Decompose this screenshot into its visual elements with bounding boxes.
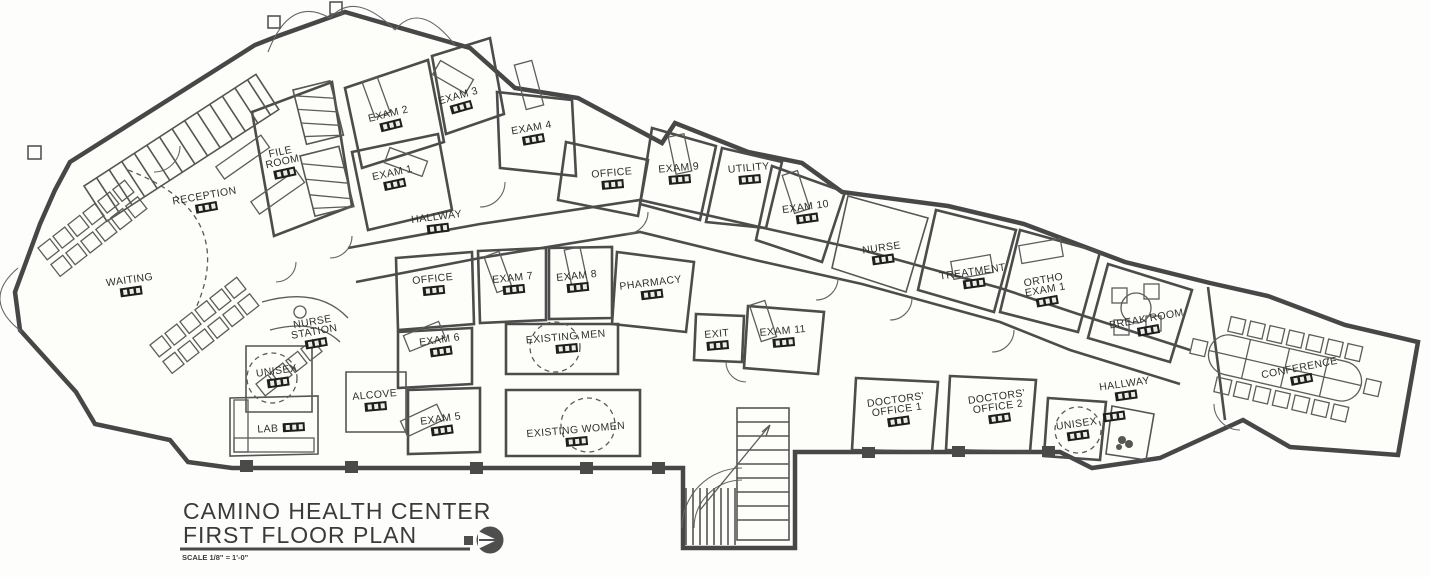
room-number-digit: [205, 204, 210, 210]
room-number-digit: [881, 257, 886, 263]
room-number-digit: [710, 343, 714, 348]
room-number-digit: [799, 216, 804, 222]
room-number-digit: [519, 286, 524, 291]
room-number-digit: [1052, 297, 1057, 303]
room-number-digit: [443, 225, 448, 230]
room-number-digit: [286, 425, 290, 430]
room-number-digit: [1106, 414, 1111, 420]
room-number-digit: [321, 339, 326, 345]
room-number-digit: [129, 289, 134, 295]
room-number-digit: [299, 424, 303, 429]
room-number-digit: [211, 203, 216, 209]
room-number-digit: [569, 439, 573, 444]
room-number-digit: [890, 419, 895, 425]
room-number-digit: [991, 416, 996, 422]
room-number-digit: [1045, 298, 1050, 304]
room-number-digit: [685, 176, 689, 181]
plan-title-line1: CAMINO HEALTH CENTER: [183, 498, 491, 524]
room-number-digit: [657, 291, 662, 296]
room-number-digit: [525, 138, 530, 144]
room-number-digit: [582, 438, 586, 443]
room-number-digit: [897, 418, 902, 424]
room-number-digit: [644, 292, 649, 297]
room-number-digit: [1124, 393, 1129, 399]
room-number-digit: [782, 340, 786, 345]
room-number-digit: [576, 285, 581, 290]
room-number-digit: [716, 343, 720, 348]
room-number-digit: [972, 281, 977, 287]
room-number-digit: [611, 182, 615, 187]
room-number-digit: [432, 288, 437, 293]
room-number-digit: [381, 403, 385, 408]
room-number-digit: [1076, 433, 1081, 439]
room-number-digit: [292, 425, 296, 430]
room-number-digit: [583, 284, 588, 289]
room-number-digit: [1083, 432, 1088, 438]
room-number-digit: [570, 285, 575, 290]
room-number-digit: [875, 257, 880, 263]
room-number-digit: [123, 289, 128, 295]
building-outline: [15, 12, 1418, 548]
room-number-digit: [446, 348, 451, 354]
room-number-digit: [723, 342, 727, 347]
room-label-exit: EXIT: [704, 327, 730, 341]
plan-title-line2: FIRST FLOOR PLAN: [183, 522, 417, 548]
room-number-digit: [575, 439, 579, 444]
floor-plan-svg: RECEPTIONFILEROOMEXAM 2EXAM 3EXAM 4EXAM …: [0, 0, 1430, 577]
title-block: CAMINO HEALTH CENTER FIRST FLOOR PLAN SC…: [180, 498, 504, 562]
room-number-digit: [903, 418, 908, 424]
room-number-digit: [447, 427, 452, 433]
room-number-digit: [1112, 414, 1117, 420]
room-number-digit: [1039, 299, 1044, 305]
room-number-digit: [136, 288, 141, 294]
room-number-digit: [1147, 327, 1152, 333]
room-number-digit: [1131, 392, 1136, 398]
room-number-digit: [755, 176, 759, 181]
room-number-digit: [538, 135, 543, 141]
room-number-digit: [532, 136, 537, 142]
room-number-digit: [434, 428, 439, 434]
room-number-digit: [1140, 329, 1145, 335]
room-number-digit: [512, 287, 517, 292]
room-number-digit: [888, 256, 893, 262]
room-number-digit: [742, 177, 746, 182]
room-number-digit: [283, 379, 288, 385]
room-number-digit: [276, 380, 281, 386]
room-number-digit: [1153, 326, 1158, 332]
room-number-digit: [678, 177, 682, 182]
room-label-lab: LAB: [257, 422, 279, 435]
room-number-digit: [789, 339, 793, 344]
room-number-digit: [618, 181, 622, 186]
room-number-digit: [1070, 433, 1075, 439]
room-number-digit: [1119, 413, 1124, 419]
room-number-digit: [440, 428, 445, 434]
room-number-digit: [812, 215, 817, 221]
room-number-digit: [805, 216, 810, 222]
room-number-digit: [433, 349, 438, 355]
room-number-digit: [565, 346, 569, 351]
room-number-digit: [979, 280, 984, 286]
room-number-digit: [506, 287, 511, 292]
room-number-digit: [308, 341, 313, 347]
room-number-digit: [430, 226, 435, 231]
room-number-digit: [198, 206, 203, 212]
room-number-digit: [966, 281, 971, 287]
room-number-digit: [672, 177, 676, 182]
room-number-digit: [436, 226, 441, 231]
room-number-digit: [559, 346, 563, 351]
room-number-digit: [426, 288, 431, 293]
room-number-digit: [572, 345, 576, 350]
room-number-digit: [368, 404, 372, 409]
room-number-digit: [314, 340, 319, 346]
room-number-digit: [1004, 415, 1009, 421]
room-number-digit: [748, 177, 752, 182]
floor-plan: RECEPTIONFILEROOMEXAM 2EXAM 3EXAM 4EXAM …: [0, 0, 1430, 577]
room-number-digit: [998, 415, 1003, 421]
room-number-digit: [270, 380, 275, 386]
room-number-digit: [374, 404, 378, 409]
room-number-digit: [439, 349, 444, 355]
room-number-digit: [439, 287, 444, 292]
room-number-digit: [776, 340, 780, 345]
room-number-digit: [605, 182, 609, 187]
room-number-digit: [1118, 393, 1123, 399]
scale-note: SCALE 1/8" = 1'-0": [182, 553, 249, 562]
room-number-digit: [650, 292, 655, 297]
